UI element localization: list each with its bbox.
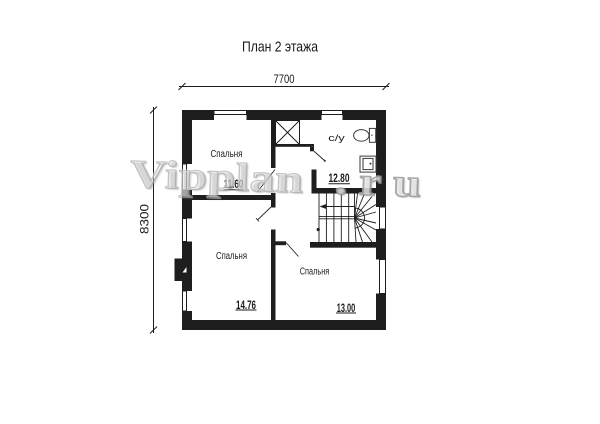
svg-text:Спальня: Спальня — [300, 266, 330, 277]
svg-text:Спальня: Спальня — [216, 251, 247, 262]
svg-text:7700: 7700 — [274, 72, 295, 86]
svg-text:8300: 8300 — [138, 204, 152, 234]
svg-text:с/у: с/у — [328, 133, 345, 144]
svg-text:План 2 этажа: План 2 этажа — [242, 40, 319, 56]
